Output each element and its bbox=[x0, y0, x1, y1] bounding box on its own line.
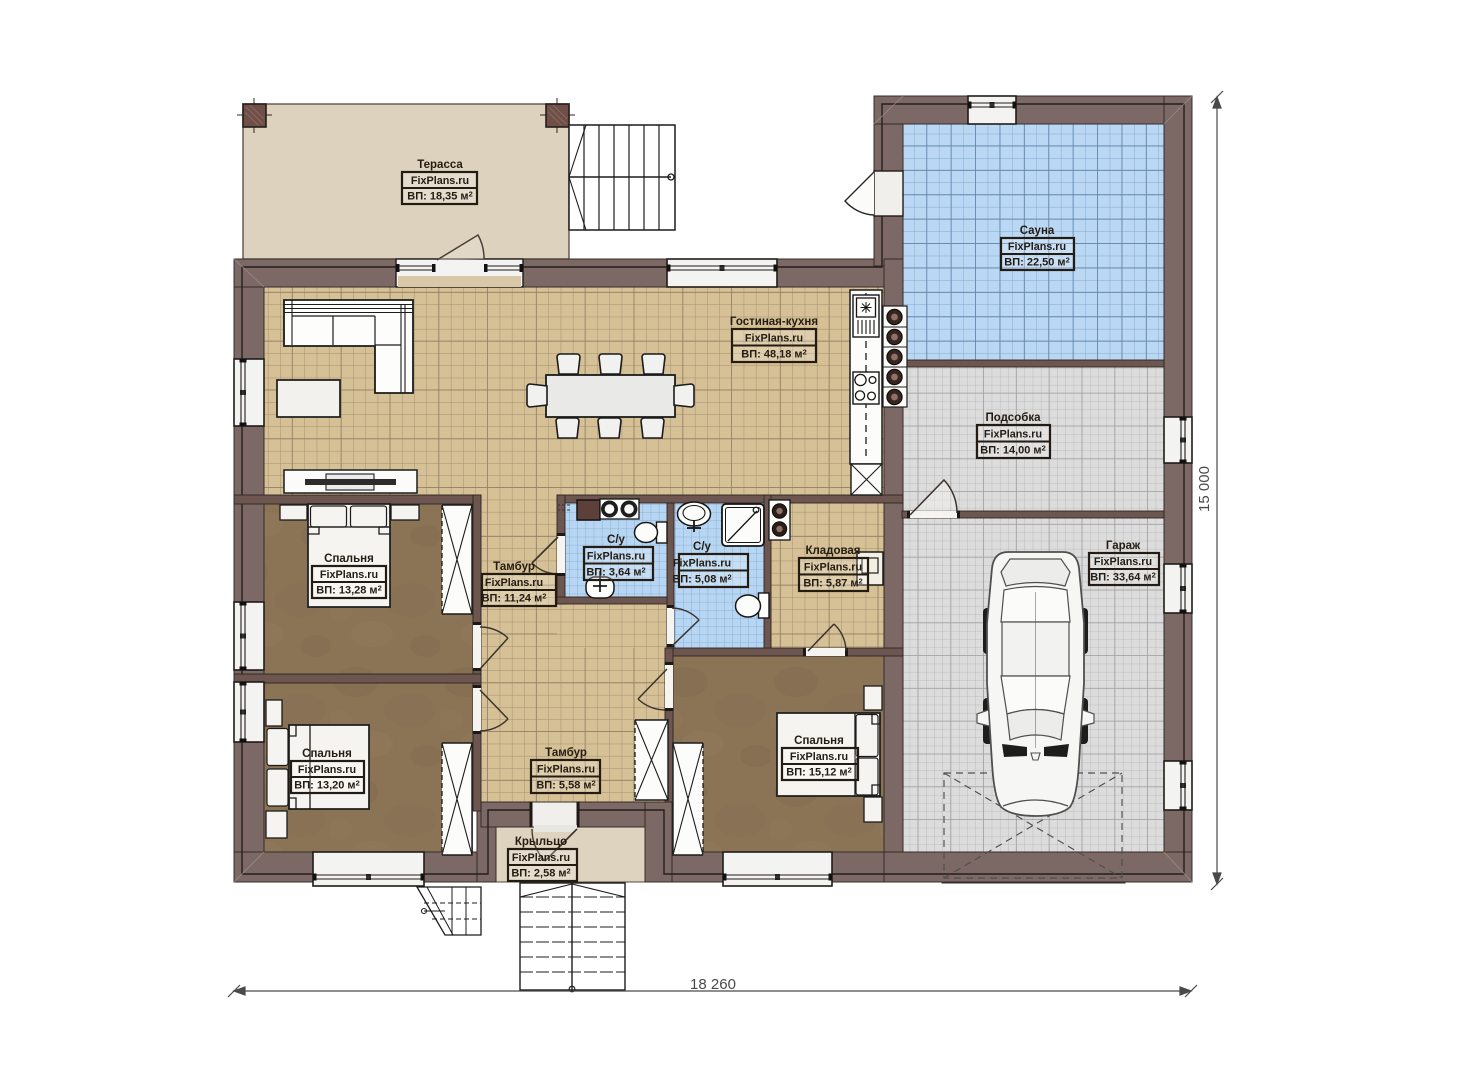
svg-text:ВП: 33,64 м2: ВП: 33,64 м2 bbox=[1090, 571, 1155, 584]
svg-text:ВП: 15,12 м2: ВП: 15,12 м2 bbox=[786, 766, 851, 779]
svg-text:FixPlans.ru: FixPlans.ru bbox=[512, 852, 570, 864]
svg-text:ВП: 2,58 м2: ВП: 2,58 м2 bbox=[511, 867, 570, 880]
svg-text:FixPlans.ru: FixPlans.ru bbox=[673, 558, 731, 570]
svg-text:Сауна: Сауна bbox=[1020, 225, 1055, 237]
svg-text:Крыльцо: Крыльцо bbox=[515, 836, 567, 848]
svg-text:С/у: С/у bbox=[693, 541, 712, 553]
svg-text:FixPlans.ru: FixPlans.ru bbox=[411, 175, 469, 187]
svg-text:ВП: 5,08 м2: ВП: 5,08 м2 bbox=[672, 573, 731, 586]
svg-text:ВП: 14,00 м2: ВП: 14,00 м2 bbox=[980, 444, 1045, 457]
svg-text:ВП: 5,58 м2: ВП: 5,58 м2 bbox=[536, 779, 595, 792]
svg-text:FixPlans.ru: FixPlans.ru bbox=[745, 333, 803, 345]
svg-text:FixPlans.ru: FixPlans.ru bbox=[298, 764, 356, 776]
svg-text:FixPlans.ru: FixPlans.ru bbox=[1094, 556, 1152, 568]
svg-text:15 000: 15 000 bbox=[1196, 466, 1213, 512]
svg-text:18 260: 18 260 bbox=[690, 976, 736, 993]
svg-text:Спальня: Спальня bbox=[324, 553, 374, 565]
svg-text:Спальня: Спальня bbox=[302, 748, 352, 760]
svg-text:Спальня: Спальня bbox=[794, 735, 844, 747]
svg-text:ВП: 5,87 м2: ВП: 5,87 м2 bbox=[803, 577, 862, 590]
svg-text:С/у: С/у bbox=[607, 534, 626, 546]
svg-text:Тамбур: Тамбур bbox=[545, 747, 587, 759]
svg-text:FixPlans.ru: FixPlans.ru bbox=[537, 764, 595, 776]
svg-text:Подсобка: Подсобка bbox=[986, 412, 1042, 424]
svg-text:FixPlans.ru: FixPlans.ru bbox=[804, 562, 862, 574]
svg-text:ВП: 18,35 м2: ВП: 18,35 м2 bbox=[407, 190, 472, 203]
svg-text:ВП: 3,64 м2: ВП: 3,64 м2 bbox=[586, 566, 645, 579]
svg-text:ВП: 13,28 м2: ВП: 13,28 м2 bbox=[316, 584, 381, 597]
svg-text:ВП: 11,24 м2: ВП: 11,24 м2 bbox=[482, 592, 547, 605]
svg-text:FixPlans.ru: FixPlans.ru bbox=[587, 551, 645, 563]
svg-text:ВП: 22,50 м2: ВП: 22,50 м2 bbox=[1004, 256, 1069, 269]
svg-text:Кладовая: Кладовая bbox=[805, 545, 860, 557]
svg-text:Гараж: Гараж bbox=[1106, 540, 1141, 552]
svg-text:FixPlans.ru: FixPlans.ru bbox=[790, 751, 848, 763]
svg-text:Тамбур: Тамбур bbox=[493, 561, 535, 573]
svg-text:Терасса: Терасса bbox=[417, 159, 463, 171]
svg-text:ВП: 13,20 м2: ВП: 13,20 м2 bbox=[294, 779, 359, 792]
svg-text:FixPlans.ru: FixPlans.ru bbox=[320, 569, 378, 581]
svg-text:FixPlans.ru: FixPlans.ru bbox=[984, 429, 1042, 441]
svg-text:FixPlans.ru: FixPlans.ru bbox=[485, 577, 543, 589]
svg-text:ВП: 48,18 м2: ВП: 48,18 м2 bbox=[741, 348, 806, 361]
svg-text:Гостиная-кухня: Гостиная-кухня bbox=[730, 316, 818, 328]
svg-text:FixPlans.ru: FixPlans.ru bbox=[1008, 241, 1066, 253]
